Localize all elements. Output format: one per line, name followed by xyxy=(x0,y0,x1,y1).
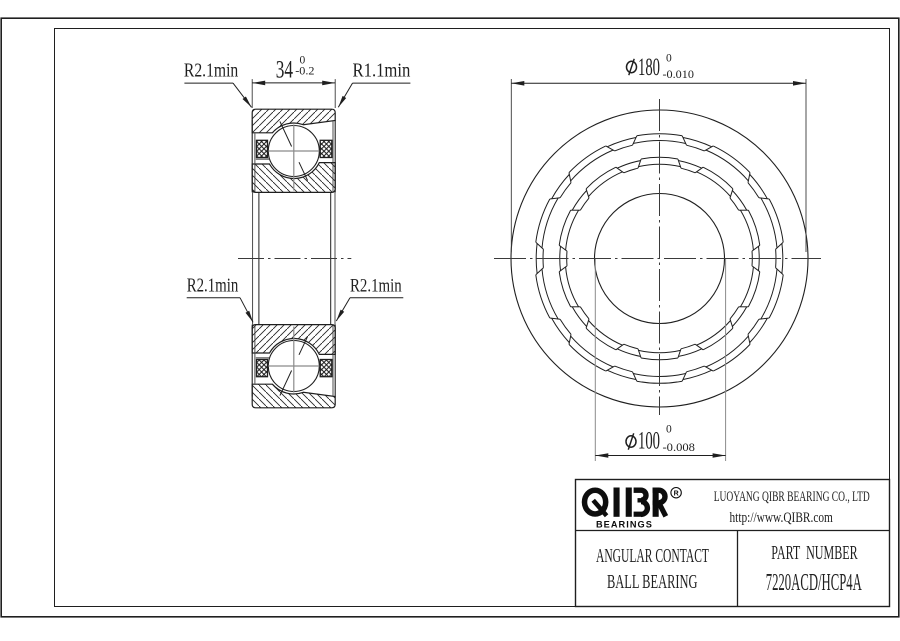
svg-text:-0.008: -0.008 xyxy=(663,440,695,454)
svg-text:http://www.QIBR.com: http://www.QIBR.com xyxy=(730,509,833,526)
svg-text:-0.2: -0.2 xyxy=(295,64,314,78)
svg-text:R: R xyxy=(674,490,679,497)
svg-text:ANGULAR CONTACT: ANGULAR CONTACT xyxy=(596,544,709,567)
svg-text:R1.1min: R1.1min xyxy=(353,60,411,81)
svg-text:0: 0 xyxy=(666,424,672,436)
svg-text:-0.010: -0.010 xyxy=(663,67,694,81)
svg-text:100: 100 xyxy=(638,426,660,454)
svg-text:7220ACD/HCP4A: 7220ACD/HCP4A xyxy=(766,570,862,596)
svg-text:R2.1min: R2.1min xyxy=(187,274,239,295)
svg-text:34: 34 xyxy=(276,55,293,83)
svg-text:BEARINGS: BEARINGS xyxy=(596,520,653,530)
svg-text:180: 180 xyxy=(638,53,660,81)
svg-text:BALL BEARING: BALL BEARING xyxy=(607,570,698,593)
svg-text:PART NUMBER: PART NUMBER xyxy=(771,541,857,564)
svg-text:0: 0 xyxy=(666,53,672,65)
svg-text:LUOYANG QIBR BEARING CO., LTD: LUOYANG QIBR BEARING CO., LTD xyxy=(714,488,870,505)
svg-text:R2.1min: R2.1min xyxy=(184,59,238,81)
svg-text:R2.1min: R2.1min xyxy=(350,274,402,295)
